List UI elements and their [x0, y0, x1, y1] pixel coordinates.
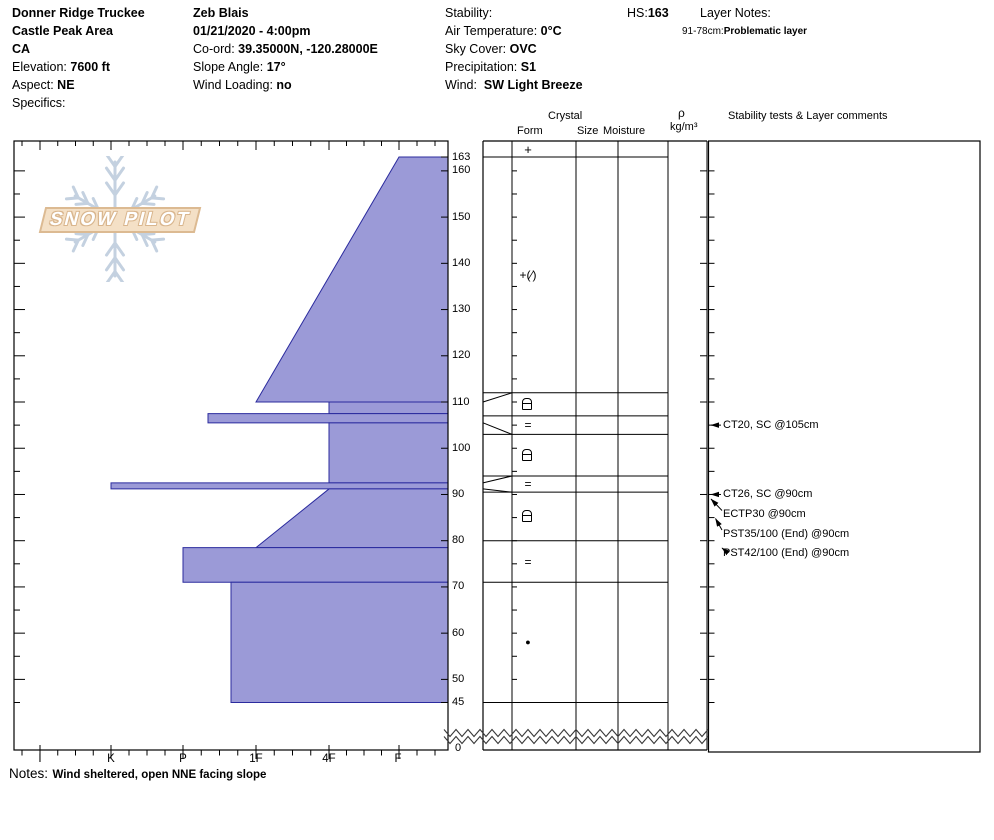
depth-label: 120: [452, 349, 470, 361]
layer-note-text: Problematic layer: [724, 26, 807, 37]
slope-value: 17°: [267, 60, 286, 74]
grain-form-symbol: =: [524, 556, 531, 568]
hardness-label: F: [394, 753, 401, 765]
stability-test-annotation: CT20, SC @105cm: [723, 419, 819, 432]
stability-test-annotation: ECTP30 @90cm: [723, 508, 806, 521]
precip-label: Precipitation:: [445, 60, 517, 74]
wind-loading-row: Wind Loading: no: [193, 76, 378, 94]
density-units-header: kg/m³: [670, 121, 698, 133]
hs-row: HS:163: [627, 4, 669, 22]
depth-label: 45: [452, 696, 464, 708]
specifics-label: Specifics:: [12, 96, 66, 110]
notes-row: Notes: Wind sheltered, open NNE facing s…: [9, 765, 266, 783]
precip-value: S1: [521, 60, 536, 74]
pit-datetime: 01/21/2020 - 4:00pm: [193, 22, 378, 40]
grain-form-symbol: +: [524, 144, 532, 156]
air-temp-label: Air Temperature:: [445, 24, 537, 38]
pit-area: Castle Peak Area: [12, 22, 145, 40]
depth-label: 100: [452, 442, 470, 454]
hardness-label: K: [107, 753, 115, 765]
hardness-profile-chart: [0, 0, 994, 840]
grain-form-symbol: [522, 398, 532, 410]
density-symbol-header: ρ: [678, 107, 685, 119]
air-temp-row: Air Temperature: 0°C: [445, 22, 583, 40]
hardness-label: I: [38, 753, 41, 765]
stability-label: Stability:: [445, 6, 492, 20]
depth-label: 150: [452, 211, 470, 223]
depth-label: 80: [452, 534, 464, 546]
comments-column-header: Stability tests & Layer comments: [728, 110, 888, 122]
hardness-label: P: [179, 753, 187, 765]
grain-form-symbol: [522, 510, 532, 522]
hs-value: 163: [648, 6, 669, 20]
depth-label: 50: [452, 673, 464, 685]
header-column-location: Donner Ridge Truckee Castle Peak Area CA…: [12, 4, 145, 112]
depth-label: 70: [452, 580, 464, 592]
elevation-row: Elevation: 7600 ft: [12, 58, 145, 76]
depth-label: 90: [452, 488, 464, 500]
depth-label: 130: [452, 303, 470, 315]
grain-form-symbol: ●: [525, 636, 530, 648]
aspect-label: Aspect:: [12, 78, 54, 92]
depth-label: 60: [452, 627, 464, 639]
wind-label: Wind:: [445, 78, 477, 92]
hs-label: HS:: [627, 6, 648, 20]
sky-cover-row: Sky Cover: OVC: [445, 40, 583, 58]
observer-name: Zeb Blais: [193, 4, 378, 22]
elevation-value: 7600 ft: [70, 60, 110, 74]
aspect-row: Aspect: NE: [12, 76, 145, 94]
pit-state: CA: [12, 40, 145, 58]
hardness-label: 1F: [249, 753, 262, 765]
stability-test-annotation: PST35/100 (End) @90cm: [723, 528, 849, 541]
size-column-header: Size: [577, 125, 598, 137]
header-column-observer: Zeb Blais 01/21/2020 - 4:00pm Co-ord: 39…: [193, 4, 378, 94]
snowpilot-logo-text: SNOW PILOT: [47, 209, 193, 231]
grain-form-symbol: +(∕): [519, 269, 536, 281]
wind-loading-label: Wind Loading:: [193, 78, 273, 92]
notes-value: Wind sheltered, open NNE facing slope: [52, 769, 266, 781]
layer-notes-header: Layer Notes:: [700, 4, 771, 22]
depth-label: 140: [452, 257, 470, 269]
moisture-column-header: Moisture: [603, 125, 645, 137]
pit-location: Donner Ridge Truckee: [12, 4, 145, 22]
snowpilot-report: Donner Ridge Truckee Castle Peak Area CA…: [0, 0, 994, 840]
depth-label: 110: [452, 396, 470, 408]
header-column-weather: Stability: Air Temperature: 0°C Sky Cove…: [445, 4, 583, 94]
crystal-column-header: Crystal: [548, 110, 582, 122]
stability-test-annotation: PST42/100 (End) @90cm: [723, 547, 849, 560]
wind-value: SW Light Breeze: [484, 78, 583, 92]
slope-row: Slope Angle: 17°: [193, 58, 378, 76]
grain-form-symbol: [522, 449, 532, 461]
coord-value: 39.35000N, -120.28000E: [238, 42, 378, 56]
stability-test-annotation: CT26, SC @90cm: [723, 488, 812, 501]
coord-label: Co-ord:: [193, 42, 235, 56]
layer-note-row: 91-78cm:Problematic layer: [682, 26, 807, 37]
coord-row: Co-ord: 39.35000N, -120.28000E: [193, 40, 378, 58]
wind-row: Wind: SW Light Breeze: [445, 76, 583, 94]
layer-note-range: 91-78cm:: [682, 26, 724, 37]
grain-form-symbol: =: [524, 478, 531, 490]
layer-notes-label: Layer Notes:: [700, 6, 771, 20]
sky-cover-value: OVC: [510, 42, 537, 56]
elevation-label: Elevation:: [12, 60, 67, 74]
air-temp-value: 0°C: [541, 24, 562, 38]
stability-row: Stability:: [445, 4, 583, 22]
form-column-header: Form: [517, 125, 543, 137]
hardness-label: 4F: [322, 753, 335, 765]
snowpilot-logo: SNOW PILOT: [39, 207, 201, 233]
wind-loading-value: no: [276, 78, 291, 92]
depth-label: 163: [452, 151, 470, 163]
slope-label: Slope Angle:: [193, 60, 263, 74]
ground-depth-label: 0: [455, 742, 461, 754]
specifics-row: Specifics:: [12, 94, 145, 112]
grain-form-symbol: =: [524, 419, 531, 431]
notes-label: Notes:: [9, 766, 48, 781]
aspect-value: NE: [57, 78, 74, 92]
precip-row: Precipitation: S1: [445, 58, 583, 76]
depth-label: 160: [452, 164, 470, 176]
sky-cover-label: Sky Cover:: [445, 42, 506, 56]
